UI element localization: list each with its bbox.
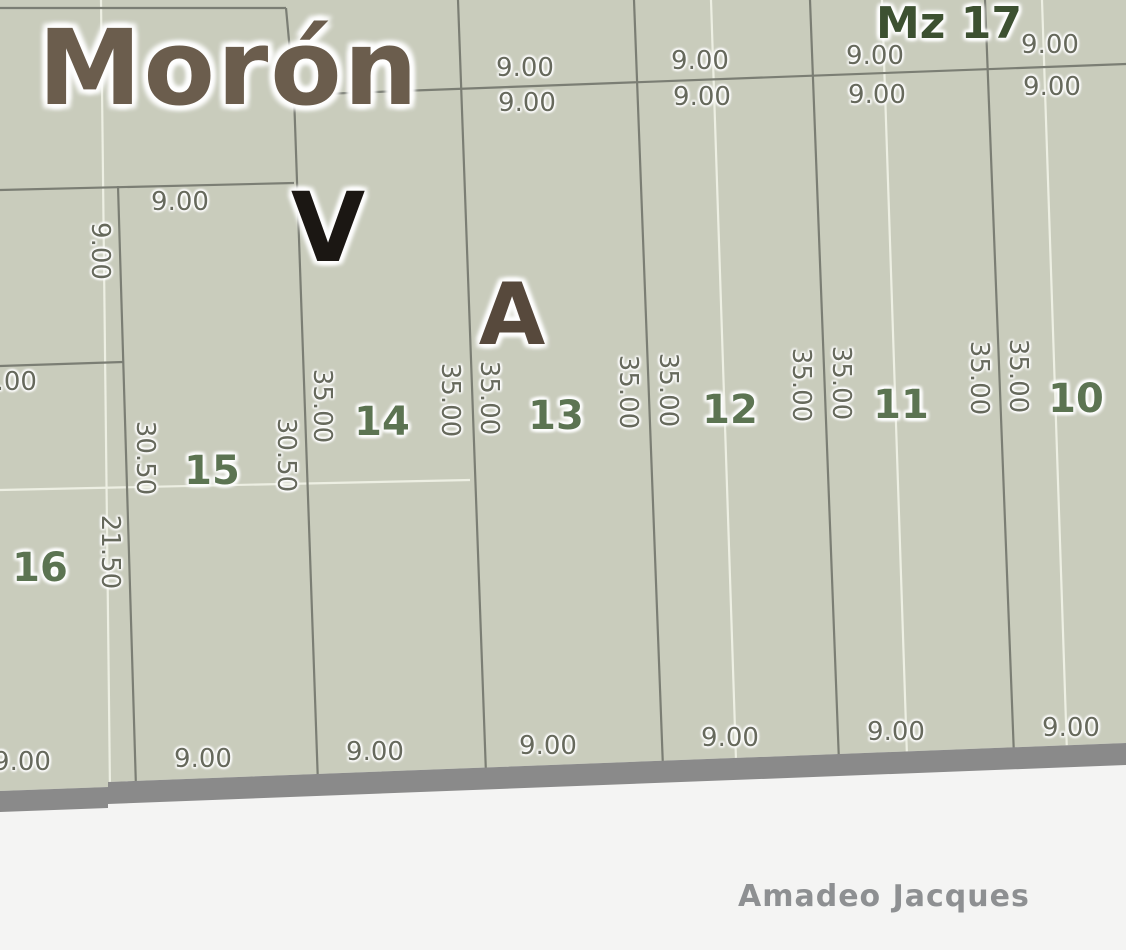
dimension-label: 30.50 [132, 421, 158, 495]
street-name-letter: A [479, 272, 546, 358]
dimension-label: 35.00 [309, 369, 335, 443]
street-name-letter: V [291, 180, 365, 276]
dimension-label: 9.00 [673, 84, 731, 110]
lot-number-label: 10 [1048, 379, 1104, 419]
dimension-label: 9.00 [701, 725, 759, 751]
dimension-label: 9.00 [346, 739, 404, 765]
dimension-label: 9.00 [496, 55, 554, 81]
dimension-label: 35.00 [788, 348, 814, 422]
dimension-label: 9.00 [519, 733, 577, 759]
dimension-label: 9.00 [671, 48, 729, 74]
dimension-label: 35.00 [966, 341, 992, 415]
lot-number-label: 11 [873, 385, 929, 425]
dimension-label: 9.00 [87, 222, 113, 280]
block-number-label: Mz 17 [876, 2, 1022, 46]
dimension-label: 9.00 [498, 90, 556, 116]
lot-number-label: 16 [12, 548, 68, 588]
lot-number-label: 12 [702, 390, 758, 430]
dimension-label: 35.00 [615, 355, 641, 429]
lot-number-label: 15 [184, 451, 240, 491]
dimension-label: 9.00 [151, 189, 209, 215]
lot-number-label: 14 [354, 402, 410, 442]
dimension-label: 35.00 [1005, 339, 1031, 413]
lot-number-label: 13 [528, 396, 584, 436]
dimension-label: 9.00 [174, 746, 232, 772]
dimension-label: 9.00 [0, 749, 51, 775]
dimension-label: 9.00 [1021, 32, 1079, 58]
dimension-label: 30.50 [273, 418, 299, 492]
cadastral-map: Morón Mz 17 Amadeo Jacques 9.009.009.009… [0, 0, 1126, 950]
dimension-label: 9.00 [1042, 715, 1100, 741]
dimension-label: 9.00 [848, 82, 906, 108]
dimension-label: 9.00 [1023, 74, 1081, 100]
dimension-label: 35.00 [828, 346, 854, 420]
dimension-label: 21.50 [97, 515, 123, 589]
street-name-label: Amadeo Jacques [738, 882, 1030, 912]
city-label: Morón [38, 16, 420, 120]
dimension-label: 9.00 [0, 369, 37, 395]
dimension-label: 35.00 [437, 363, 463, 437]
dimension-label: 9.00 [846, 43, 904, 69]
parcel-map-geometry [0, 0, 1126, 950]
dimension-label: 9.00 [867, 719, 925, 745]
dimension-label: 35.00 [476, 361, 502, 435]
dimension-label: 35.00 [655, 353, 681, 427]
